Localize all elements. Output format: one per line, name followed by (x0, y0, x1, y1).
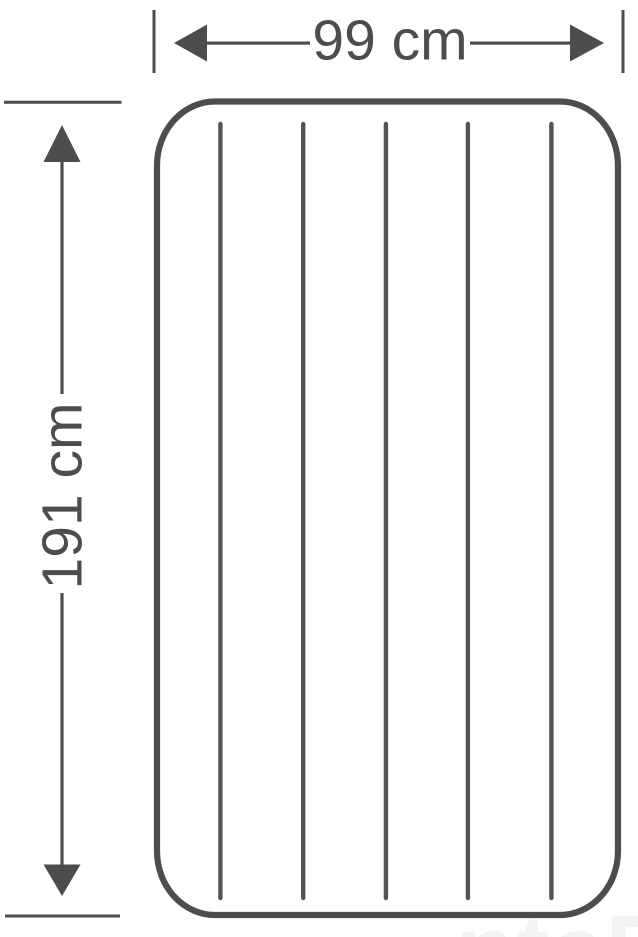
svg-text:191 cm: 191 cm (31, 403, 95, 590)
svg-text:99 cm: 99 cm (312, 9, 467, 73)
